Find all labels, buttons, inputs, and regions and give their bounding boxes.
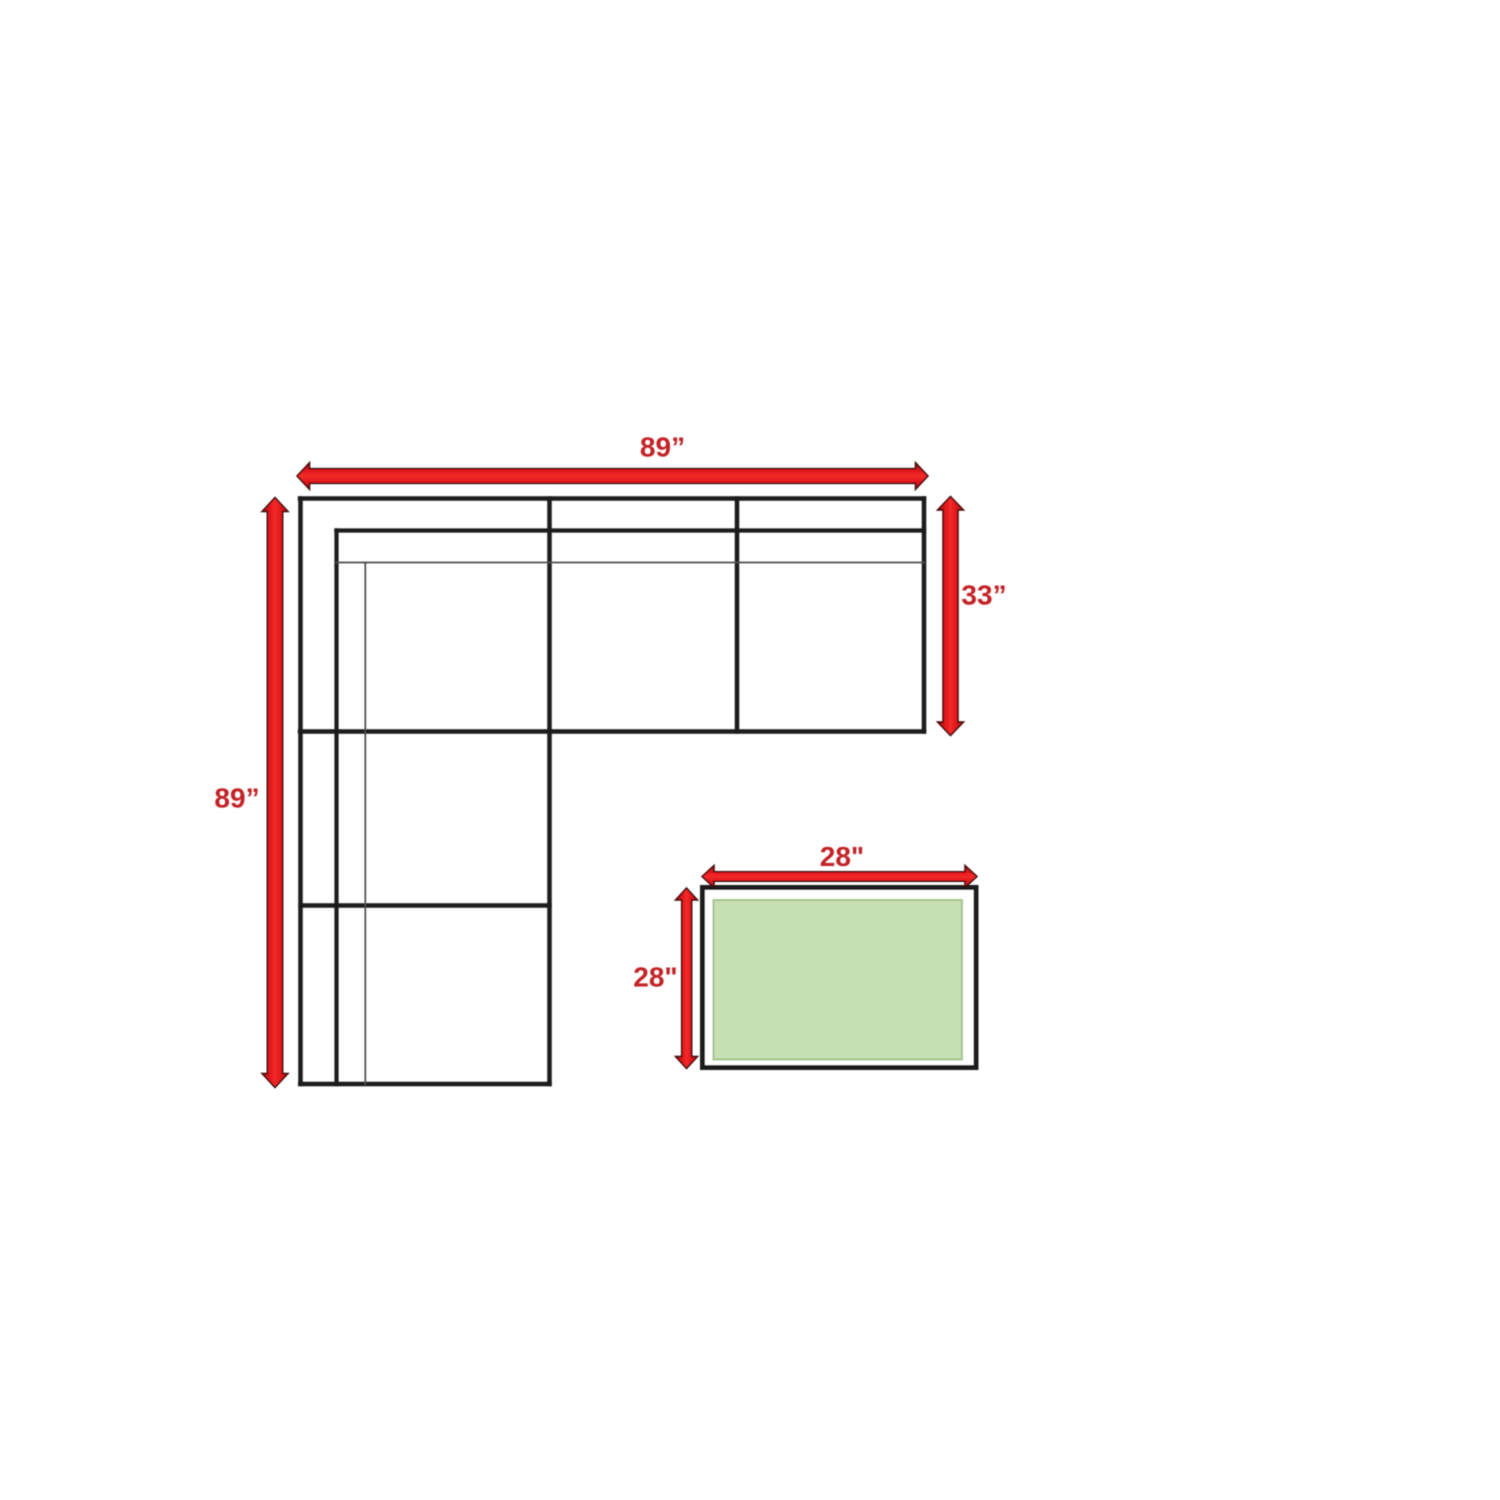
svg-text:28": 28" xyxy=(820,841,864,872)
svg-text:89”: 89” xyxy=(214,783,259,814)
svg-text:33”: 33” xyxy=(961,580,1006,611)
svg-text:28": 28" xyxy=(633,962,677,993)
svg-text:89”: 89” xyxy=(640,432,685,463)
